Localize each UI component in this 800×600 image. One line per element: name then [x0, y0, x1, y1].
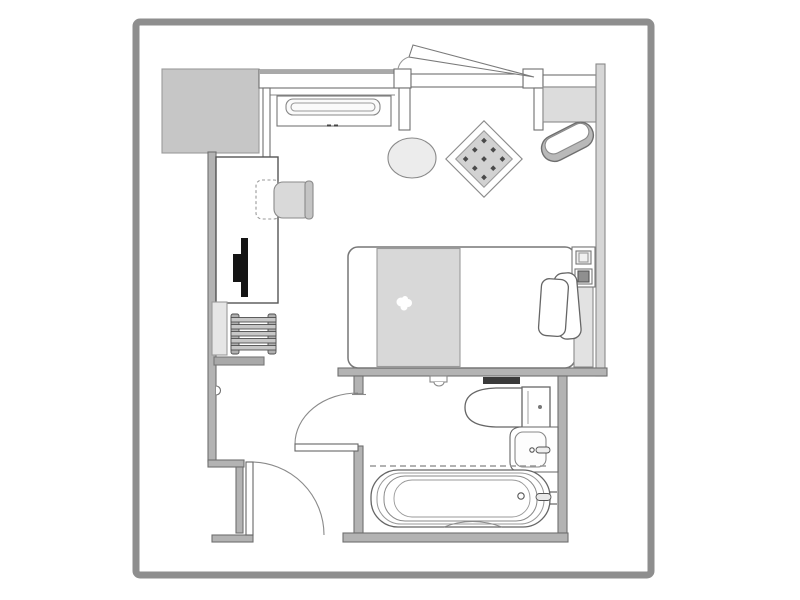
window-post-left: [399, 88, 410, 130]
window-swing-arc: [398, 57, 409, 69]
bathtub-faucet: [536, 494, 551, 501]
flower-petal: [402, 296, 408, 302]
luggage-rack-slat: [231, 339, 276, 344]
entry-wall-jog-h: [208, 460, 244, 467]
entry-wall-jog-v: [236, 467, 243, 533]
wall-bump-3: [216, 386, 221, 395]
entry-door-leaf: [246, 462, 253, 535]
bath-shelf: [483, 377, 520, 384]
plan-root: [136, 22, 651, 575]
counter: [543, 87, 596, 122]
window-mullion-left: [394, 69, 411, 88]
window-open-sash: [409, 45, 534, 77]
bed-duvet: [377, 249, 460, 367]
console-cushion: [286, 99, 380, 115]
ottoman-bench: [537, 118, 598, 166]
luggage-rack-slat: [231, 325, 276, 330]
luggage-rack-slat: [231, 318, 276, 323]
window-post-right: [534, 88, 543, 130]
tv-stand: [233, 254, 241, 282]
tv: [241, 238, 248, 297]
bath-wall-bottom: [343, 533, 568, 542]
flower-petal: [401, 304, 408, 311]
sink-drain: [530, 448, 534, 452]
bedside-panel-switch: [578, 271, 589, 282]
toilet-paper-holder: [430, 376, 447, 382]
bathtub-drain: [518, 493, 524, 499]
wall-shelf: [214, 357, 264, 365]
bath-wall-top: [338, 368, 607, 376]
area-rug: [446, 121, 522, 197]
sink-faucet: [536, 447, 550, 453]
toilet-bowl: [465, 388, 523, 427]
bath-wall-left-stub: [354, 376, 363, 394]
floor-plan-image: [0, 0, 800, 600]
pillow-left: [538, 278, 569, 337]
luggage-rack-slat: [231, 346, 276, 351]
window-glass: [411, 74, 523, 87]
luggage-rack: [231, 314, 276, 354]
toilet-paper-roll: [434, 382, 444, 386]
chair-backrest: [305, 181, 313, 219]
toilet-tank: [522, 387, 550, 428]
entry-wall-bottom: [212, 535, 253, 542]
round-table: [388, 138, 436, 178]
bath-door-leaf: [295, 444, 358, 451]
floor-plan-svg: [0, 0, 800, 600]
counter-backsplash: [543, 75, 596, 87]
entry-door-arc: [251, 462, 324, 535]
wall-return: [263, 88, 270, 157]
bath-wall-left: [354, 446, 363, 533]
window-mullion-right: [523, 69, 543, 88]
bath-door-arc: [295, 393, 358, 444]
wardrobe: [162, 69, 259, 153]
toilet-flush-button: [538, 405, 542, 409]
right-wall: [596, 64, 605, 376]
mirror: [212, 302, 227, 355]
top-wall-edge: [259, 70, 396, 74]
luggage-rack-slat: [231, 332, 276, 337]
bath-wall-right: [558, 376, 567, 533]
